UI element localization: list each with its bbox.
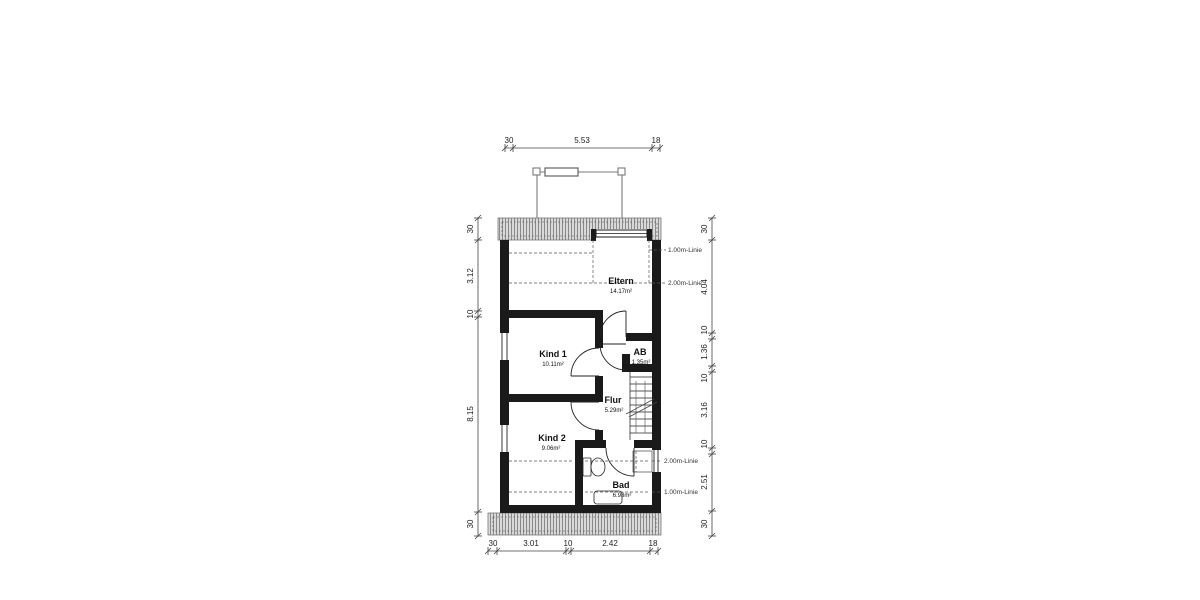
dim-right-316: 3.16 [700,402,709,418]
dim-left-815: 8.15 [466,406,475,422]
dimension-right [708,215,716,539]
room-area-bad: 6.98m² [613,493,632,499]
label-bottom-2m-linie: 2.00m-Linie [664,458,698,465]
dimension-bottom [485,547,661,555]
dim-left-30-top: 30 [466,224,475,233]
dim-right-10b: 10 [700,373,709,382]
dim-bottom-18: 18 [649,539,658,548]
dimension-top [502,144,663,152]
floor-plan-drawing: 1.00m-Linie 2.00m-Linie 2.00m-Linie 1.00… [0,0,1200,600]
room-area-ab: 1.35m² [632,360,651,366]
room-area-kind2: 9.06m² [542,446,561,452]
dim-top-553: 5.53 [574,136,590,145]
dim-right-10c: 10 [700,439,709,448]
label-top-1m-linie: 1.00m-Linie [668,247,702,254]
room-area-eltern: 14.17m² [610,289,632,295]
floor-plan-page: 1.00m-Linie 2.00m-Linie 2.00m-Linie 1.00… [0,0,1200,600]
room-label-kind1: Kind 1 [539,349,567,359]
roof-band-top [498,218,661,241]
label-top-2m-linie: 2.00m-Linie [668,280,702,287]
window-left-kind2 [499,425,510,452]
dim-top-30: 30 [505,136,514,145]
dim-top-18: 18 [652,136,661,145]
roof-band-bottom [488,513,661,535]
dim-left-10: 10 [466,309,475,318]
dim-left-312: 3.12 [466,268,475,284]
label-bottom-1m-linie: 1.00m-Linie [664,489,698,496]
room-label-eltern: Eltern [608,276,634,286]
room-label-flur: Flur [605,395,622,405]
room-area-kind1: 10.11m² [542,362,564,368]
dim-bottom-10: 10 [564,539,573,548]
room-area-flur: 5.29m² [605,408,624,414]
dim-right-30-top: 30 [700,224,709,233]
dim-right-404: 4.04 [700,279,709,295]
dimension-left [474,215,482,539]
dim-right-251: 2.51 [700,474,709,490]
dim-right-136: 1.36 [700,344,709,360]
window-left-kind1 [499,333,510,360]
dim-right-30-bottom: 30 [700,519,709,528]
dim-left-30-bottom: 30 [466,519,475,528]
dim-bottom-30: 30 [489,539,498,548]
room-label-kind2: Kind 2 [538,433,566,443]
dim-bottom-301: 3.01 [523,539,539,548]
dim-bottom-242: 2.42 [602,539,618,548]
room-label-ab: AB [634,347,647,357]
dim-right-10a: 10 [700,325,709,334]
dormer-outline [533,168,625,218]
room-label-bad: Bad [612,480,629,490]
